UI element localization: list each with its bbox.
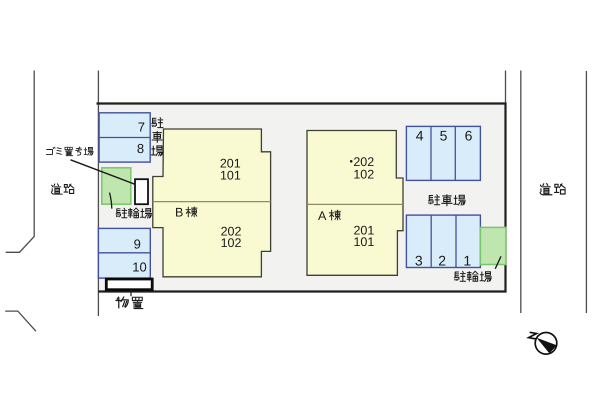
svg-text:102: 102 — [221, 236, 242, 250]
svg-text:202: 202 — [353, 155, 374, 169]
svg-text:2: 2 — [438, 253, 446, 269]
svg-text:5: 5 — [440, 127, 448, 143]
svg-text:3: 3 — [415, 253, 423, 269]
svg-text:10: 10 — [132, 259, 146, 274]
svg-text:4: 4 — [416, 127, 424, 143]
svg-text:7: 7 — [138, 120, 145, 135]
svg-text:6: 6 — [465, 127, 473, 143]
svg-text:8: 8 — [137, 141, 144, 156]
svg-text:101: 101 — [353, 235, 374, 249]
svg-text:B: B — [175, 206, 183, 220]
svg-text:101: 101 — [220, 169, 241, 183]
svg-text:A: A — [318, 209, 327, 223]
svg-text:9: 9 — [134, 236, 141, 251]
svg-text:102: 102 — [353, 168, 374, 182]
svg-text:1: 1 — [463, 253, 471, 269]
